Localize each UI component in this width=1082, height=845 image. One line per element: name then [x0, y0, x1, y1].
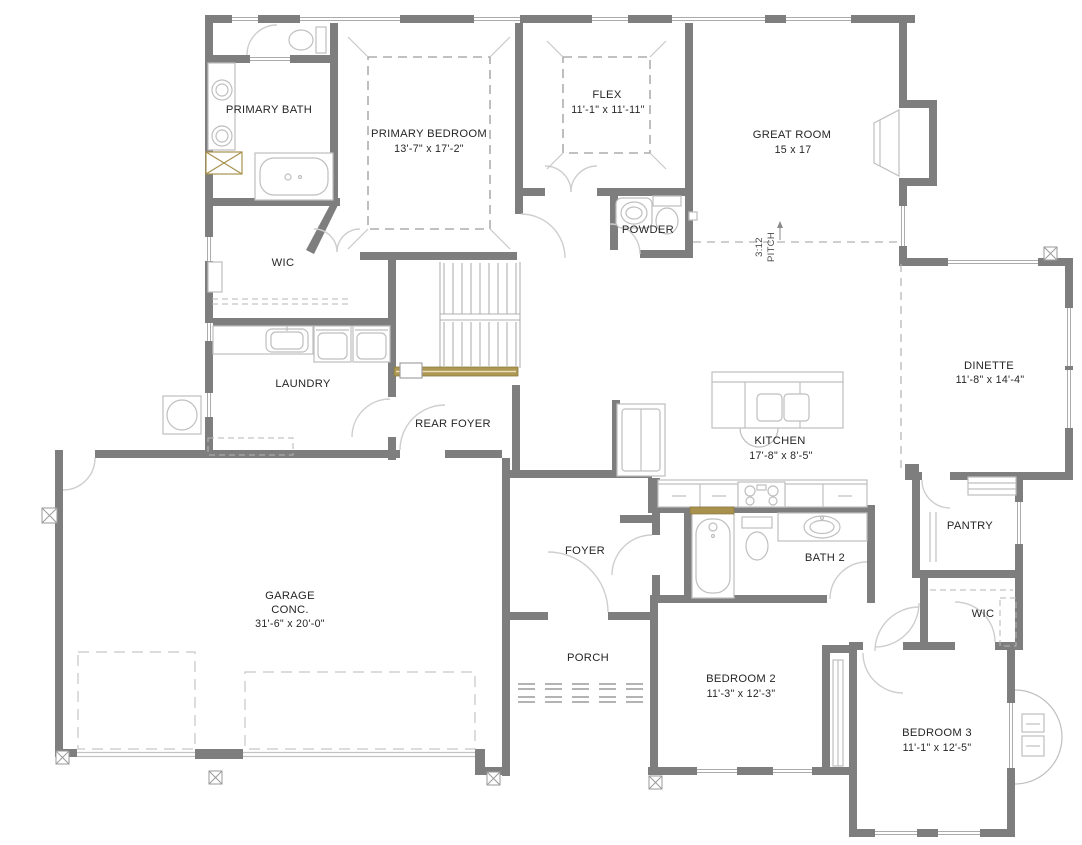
dims-dinette: 11'-8" x 14'-4": [956, 374, 1025, 386]
bath2-tub: [692, 513, 734, 598]
newel-post: [400, 363, 422, 378]
pocket-door-primary-bath: [250, 55, 290, 63]
label-bedroom3: BEDROOM 3: [902, 727, 972, 739]
door-flex-left-leaf: [545, 166, 571, 192]
door-bath2: [830, 562, 867, 599]
label-flex: FLEX: [592, 89, 621, 101]
dims-primary-bedroom: 13'-7" x 17'-2": [394, 143, 464, 155]
post-icon: [209, 771, 222, 784]
garage-door-bays: [78, 652, 475, 749]
label-pantry: PANTRY: [947, 520, 993, 532]
fireplace: [874, 110, 899, 176]
door-laundry: [352, 399, 390, 437]
powder-wall-detail: [689, 212, 697, 220]
label-laundry: LAUNDRY: [275, 378, 331, 390]
label-primary-bath: PRIMARY BATH: [226, 104, 312, 116]
fixture-symbol-icon: [1044, 247, 1057, 260]
ac-unit: [1015, 690, 1062, 784]
kitchen-range: [738, 482, 785, 507]
label-bath2: BATH 2: [805, 552, 845, 564]
window-bedroom3: [875, 703, 1015, 837]
label-bedroom2: BEDROOM 2: [706, 673, 776, 685]
dims-bedroom2: 11'-3" x 12'-3": [707, 688, 776, 700]
label-rear-foyer: REAR FOYER: [415, 418, 491, 430]
window-pantry-right: [1015, 502, 1023, 544]
bedroom2-closet-slider: [833, 660, 843, 766]
door-arcs: [63, 25, 995, 693]
laundry-washer: [314, 326, 351, 362]
door-foyer-closet: [612, 535, 652, 575]
label-kitchen: KITCHEN: [754, 435, 805, 447]
structural-posts: [42, 247, 1057, 789]
door-bath-closet: [247, 25, 277, 55]
door-pantry: [922, 480, 950, 508]
water-heater: [163, 396, 201, 434]
door-garage-service: [63, 458, 95, 490]
primary-bath-linen-cabinet: [206, 152, 242, 174]
label-foyer: FOYER: [565, 545, 605, 557]
stair-railing: [394, 363, 518, 378]
label-garage-material: CONC.: [271, 604, 309, 616]
label-powder: POWDER: [622, 224, 674, 236]
label-garage: GARAGE: [265, 590, 315, 602]
porch-steps: [518, 684, 650, 702]
dims-great-room: 15 x 17: [775, 144, 812, 156]
post-icon: [56, 751, 69, 764]
post-icon: [649, 776, 662, 789]
door-flex-right-leaf: [571, 166, 597, 192]
door-hall-a: [875, 603, 919, 647]
label-great-room: GREAT ROOM: [753, 129, 831, 141]
door-front-entry: [548, 552, 608, 612]
primary-toilet: [289, 27, 326, 53]
label-porch: PORCH: [567, 652, 609, 664]
bath2-shelf-accent: [690, 507, 734, 514]
dims-flex: 11'-1" x 11'-11": [571, 104, 645, 116]
floor-plan-page: 3:12 PITCH: [0, 0, 1082, 845]
window-dinette: [948, 258, 1073, 428]
window-great-room-right: [899, 206, 907, 246]
staircase: [440, 262, 520, 368]
floor-plan-drawing: 3:12 PITCH: [0, 0, 1082, 845]
door-bedroom3: [863, 653, 903, 693]
pitch-ratio-text: 3:12: [754, 237, 765, 257]
garage-door-lines: [77, 753, 475, 757]
dims-garage: 31'-6" x 20'-0": [255, 618, 325, 630]
primary-bath-tub: [255, 153, 333, 200]
wic-shelf-unit: [208, 262, 222, 292]
laundry-dryer: [353, 326, 390, 362]
post-icon: [42, 508, 57, 523]
label-primary-bedroom: PRIMARY BEDROOM: [371, 128, 487, 140]
dims-bedroom3: 11'-1" x 12'-5": [903, 742, 972, 754]
laundry-counter-sink: [213, 326, 313, 354]
label-dinette: DINETTE: [964, 360, 1014, 372]
label-wic-primary: WIC: [272, 257, 295, 269]
pitch-label-text: PITCH: [766, 232, 777, 262]
kitchen-fridge: [617, 404, 665, 476]
door-primary-bedroom: [521, 214, 565, 258]
dims-kitchen: 17'-8" x 8'-5": [749, 450, 812, 462]
bath2-vanity: [778, 513, 867, 541]
bath2-toilet: [742, 517, 772, 560]
post-icon: [487, 772, 500, 785]
label-wic2: WIC: [972, 608, 995, 620]
